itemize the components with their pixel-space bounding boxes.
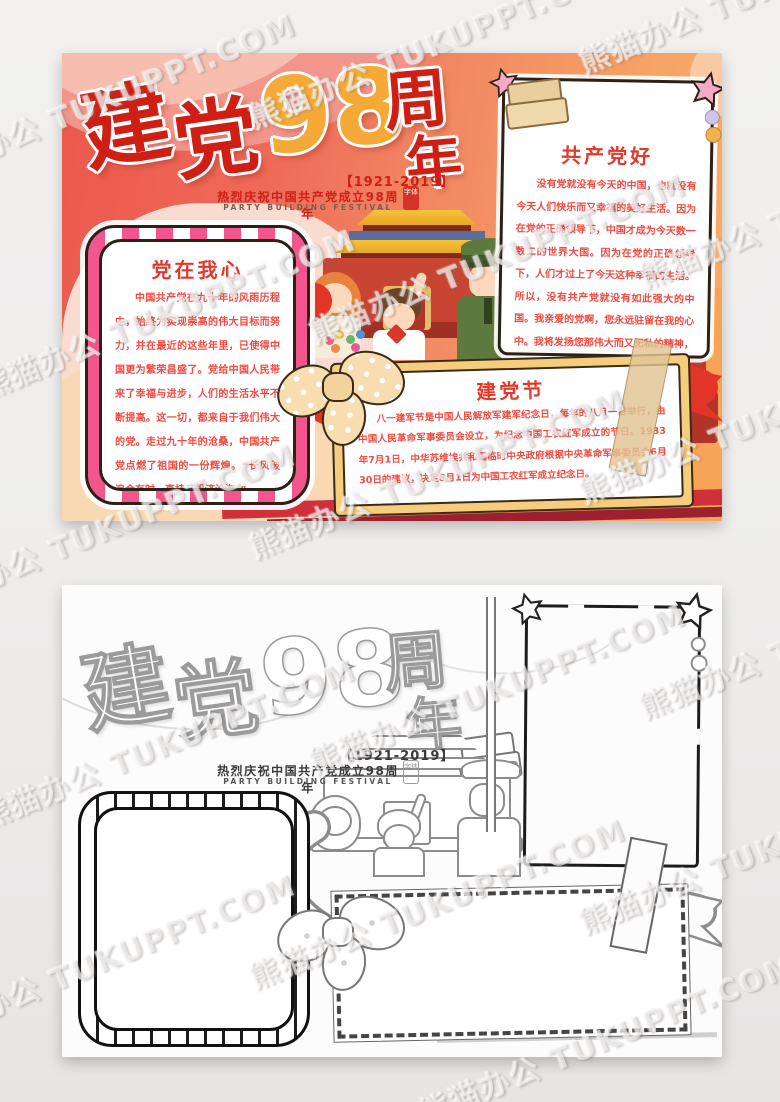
title-char-jian: 建 — [75, 638, 177, 740]
template-preview-canvas: 建 党 98 周 年 【1921-2019】 热烈庆祝中国共产党成立98周年 P… — [0, 0, 780, 1102]
title-char-zhou: 周 — [381, 628, 450, 697]
deco-circle-bw — [691, 655, 708, 672]
section-left-body: 中国共产党在九十年的风雨历程中，始终为实现崇高的伟大目标而努力，并在最近的这些年… — [115, 287, 280, 491]
section-right-title: 共产党好 — [512, 138, 702, 170]
wooden-sign — [502, 77, 565, 130]
font-seal-bw: 字体 — [403, 760, 419, 784]
bow-knot — [322, 372, 354, 402]
title-char-dang: 党 — [169, 92, 264, 187]
subtitle-en-bw: PARTY BUILDING FESTIVAL — [212, 777, 404, 786]
star-icon-bw — [510, 591, 546, 627]
poster-bw-version: 建 党 98 周 年 【1921-2019】 热烈庆祝中国共产党成立98周年 P… — [62, 585, 722, 1057]
poster-color-version: 建 党 98 周 年 【1921-2019】 热烈庆祝中国共产党成立98周年 P… — [62, 53, 722, 521]
signpost-pole-bw — [486, 597, 496, 832]
border-gap — [568, 605, 584, 609]
border-gap — [696, 729, 700, 745]
bow-knot — [322, 917, 354, 947]
ribbon-bow-bw — [276, 893, 406, 988]
star-icon — [687, 69, 722, 110]
subtitle-en: PARTY BUILDING FESTIVAL — [212, 203, 404, 212]
font-seal: 字体 — [403, 186, 419, 210]
section-box-left-bw-inner — [94, 807, 294, 1031]
border-gap — [638, 605, 654, 609]
section-left-title: 党在我心 — [110, 254, 285, 283]
deco-circle-bw — [691, 637, 706, 652]
section-box-right: 共产党好 没有党就没有今天的中国，也就没有今天人们快乐而又幸福的美好生活。因为在… — [498, 77, 715, 359]
star-icon-bw — [672, 591, 714, 633]
section-box-right-bw — [523, 604, 701, 868]
title-char-zhou: 周 — [381, 66, 450, 135]
ribbon-bow — [276, 348, 406, 443]
title-char-dang: 党 — [169, 654, 264, 749]
section-box-left-inner: 党在我心 中国共产党在九十年的风雨历程中，始终为实现崇高的伟大目标而努力，并在最… — [99, 239, 296, 491]
title-char-jian: 建 — [75, 76, 177, 178]
